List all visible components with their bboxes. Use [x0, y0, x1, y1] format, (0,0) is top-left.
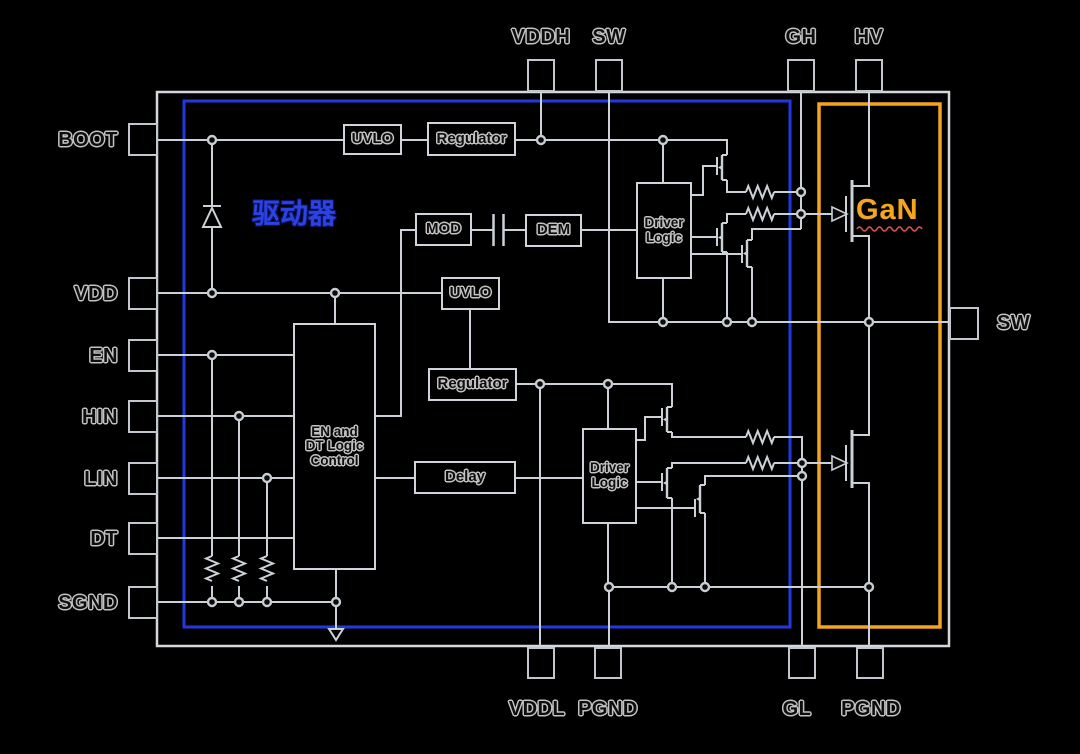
schematic-diagram: VDDH SW GH HV BOOT VDD EN HIN LIN DT SGN…: [0, 0, 1080, 754]
small-nmos-low-transistor: [695, 485, 705, 517]
ground-symbol: [329, 629, 343, 640]
pin-label-lin: LIN: [40, 468, 118, 491]
pin-label-vddl: VDDL: [497, 698, 577, 721]
block-uvlo-high: UVLO: [343, 124, 402, 155]
pin-sw-right: [949, 307, 979, 340]
pin-pgnd-1: [594, 647, 622, 679]
pin-dt: [128, 522, 158, 555]
driver-region-label: 驱动器: [252, 192, 336, 232]
gate-arrowheads: [832, 207, 847, 470]
pin-boot: [128, 123, 158, 156]
pin-label-sw-top: SW: [569, 26, 649, 49]
pin-label-pgnd-2: PGND: [831, 698, 911, 721]
pin-label-gl: GL: [757, 698, 837, 721]
input-pulldown-resistors: [206, 556, 273, 581]
pin-sw-top: [595, 59, 623, 92]
pin-label-pgnd-1: PGND: [568, 698, 648, 721]
level-shift-capacitor: [494, 214, 504, 246]
pmos-high-transistor: [717, 155, 727, 180]
pin-label-hin: HIN: [40, 406, 118, 429]
block-uvlo-low: UVLO: [441, 277, 500, 310]
pin-hin: [128, 400, 158, 433]
small-nmos-high-transistor: [742, 240, 752, 267]
pin-sgnd: [128, 586, 158, 619]
pin-label-vdd: VDD: [40, 283, 118, 306]
block-regulator-high: Regulator: [427, 122, 516, 156]
chip-boundary: [157, 92, 949, 646]
pin-label-sgnd: SGND: [40, 592, 118, 615]
pin-pgnd-2: [856, 647, 884, 679]
block-driver-logic-high: Driver Logic: [636, 182, 692, 279]
block-en-dt-logic-control: EN and DT Logic Control: [293, 323, 376, 570]
pin-label-sw-right: SW: [997, 312, 1077, 335]
pin-label-dt: DT: [40, 528, 118, 551]
pmos-low-transistor: [662, 407, 672, 432]
gan-region-outline: [819, 104, 940, 627]
pin-lin: [128, 462, 158, 495]
pin-en: [128, 339, 158, 372]
driver-region-outline: [184, 101, 790, 627]
pin-label-boot: BOOT: [40, 129, 118, 152]
gan-fet-low-transistor: [846, 430, 852, 488]
block-driver-logic-low: Driver Logic: [582, 428, 637, 524]
nmos-high-transistor: [717, 223, 727, 252]
pin-label-hv: HV: [829, 26, 909, 49]
wire-net: [157, 92, 949, 648]
pin-vdd: [128, 277, 158, 310]
pin-vddl: [527, 647, 555, 679]
gan-label-squiggle: [857, 227, 922, 231]
gan-fet-high-transistor: [846, 180, 852, 242]
block-delay: Delay: [414, 461, 516, 494]
nmos-low-transistor: [662, 468, 672, 498]
pin-label-en: EN: [40, 345, 118, 368]
block-mod: MOD: [415, 213, 472, 246]
block-regulator-low: Regulator: [428, 368, 517, 401]
gan-region-label: GaN: [856, 194, 919, 227]
pin-gl: [788, 647, 816, 679]
pin-gh: [787, 59, 815, 92]
schematic-canvas: [0, 0, 1080, 754]
pin-vddh: [527, 59, 555, 92]
pin-hv: [855, 59, 883, 92]
block-dem: DEM: [525, 214, 582, 247]
bootstrap-diode: [203, 206, 221, 227]
